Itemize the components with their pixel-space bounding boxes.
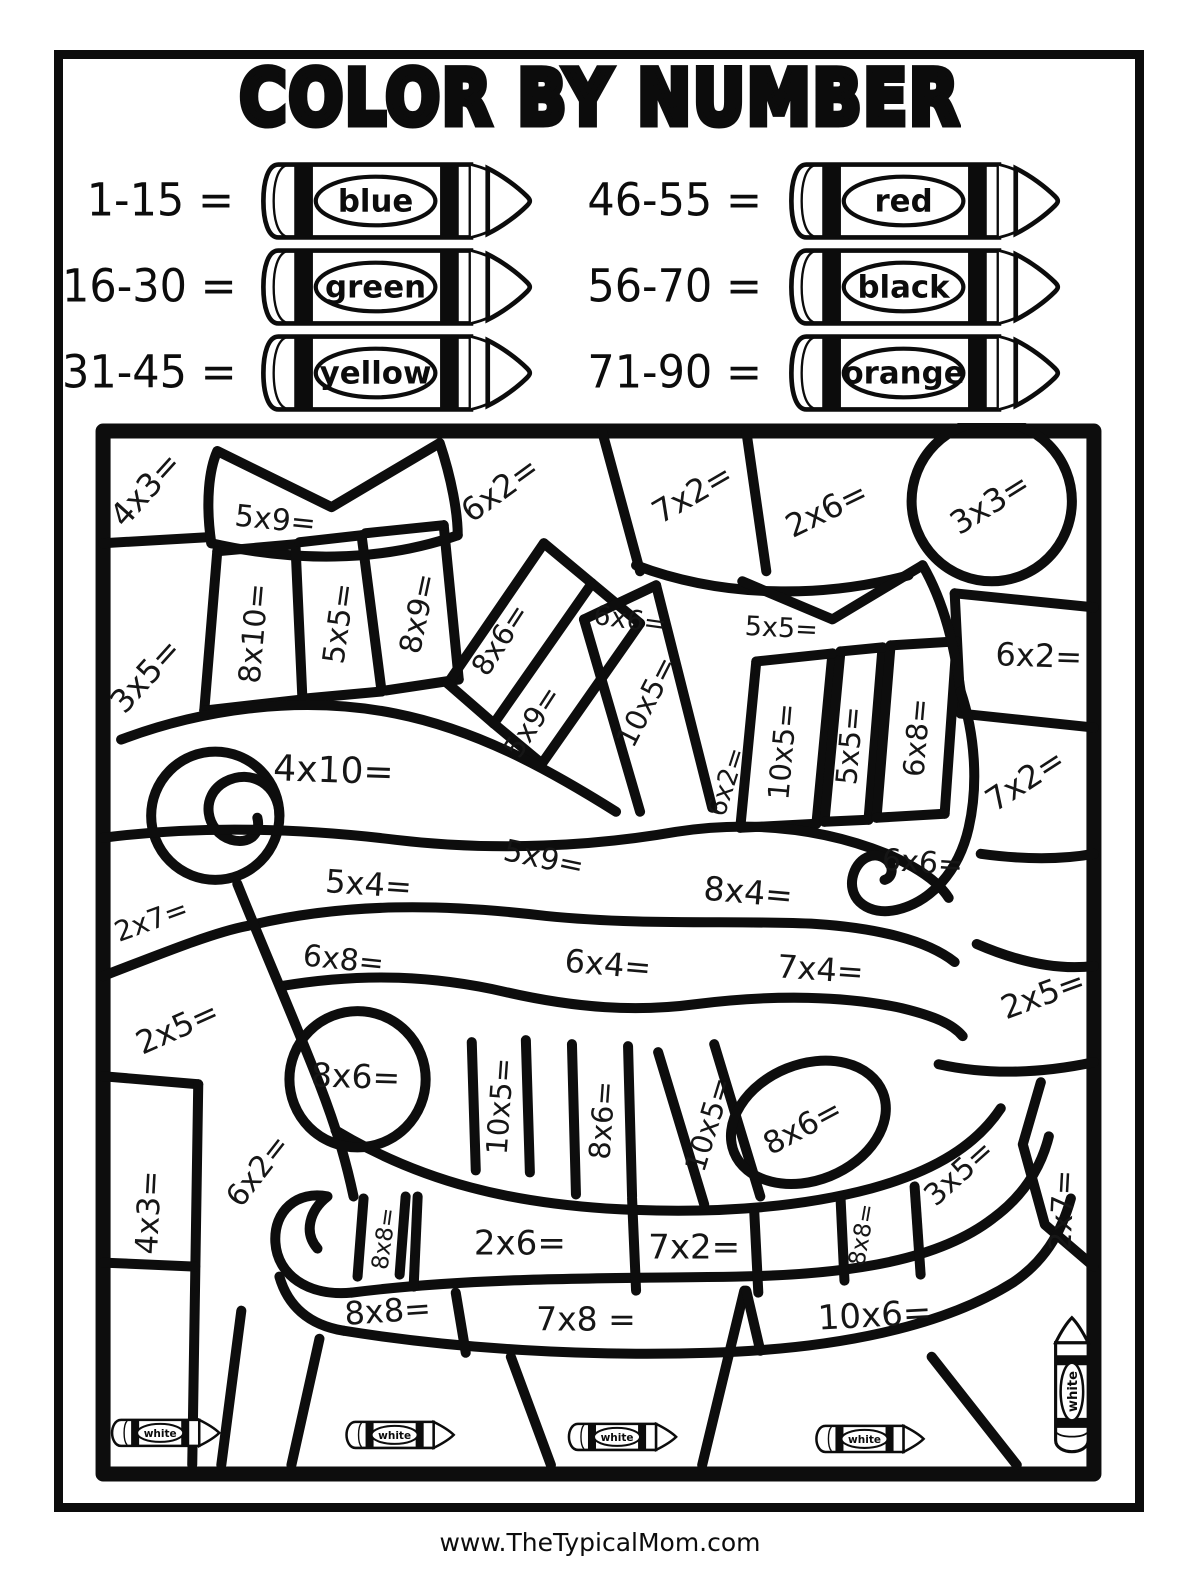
white-crayon-icon bbox=[569, 1424, 676, 1450]
legend-range-green: 16-30 = bbox=[62, 261, 242, 314]
puzzle-cell-label: 5x4= bbox=[324, 862, 413, 906]
puzzle-cell-label: 2x5= bbox=[996, 962, 1090, 1027]
crayon-icon-red: red bbox=[776, 158, 1076, 244]
crayon-icon-green: green bbox=[248, 244, 548, 330]
color-legend: 1-15 = blue 46-55 = red 16-30 = green 56… bbox=[62, 158, 1084, 416]
puzzle-cell-label: 3x3= bbox=[943, 464, 1037, 542]
puzzle-cell-label: 8x8= bbox=[343, 1289, 432, 1333]
crayon-icon-blue: blue bbox=[248, 158, 548, 244]
puzzle-cell-label: 4x10= bbox=[273, 747, 395, 793]
puzzle-cell-label: 5x9= bbox=[233, 499, 317, 542]
legend-range-orange: 71-90 = bbox=[562, 347, 770, 400]
legend-range-blue: 1-15 = bbox=[62, 175, 242, 228]
white-crayon-icon bbox=[1056, 1318, 1089, 1452]
legend-color-yellow: yellow bbox=[320, 355, 432, 391]
crayon-icon-orange: orange bbox=[776, 330, 1076, 416]
puzzle-cell-label: 6x8= bbox=[301, 938, 385, 981]
puzzle-cell-label: 5x5= bbox=[744, 611, 819, 646]
puzzle-cell-label: 10x5= bbox=[480, 1057, 521, 1156]
puzzle-cell-label: 8x6= bbox=[582, 1080, 621, 1161]
legend-range-yellow: 31-45 = bbox=[62, 347, 242, 400]
puzzle-cell-label: 8x6= bbox=[310, 1055, 401, 1097]
puzzle-cell-label: 10x5= bbox=[609, 651, 683, 753]
puzzle-cell-label: 10x6= bbox=[817, 1293, 933, 1339]
puzzle-cell-label: 6x4= bbox=[563, 942, 653, 987]
page-title: COLOR BY NUMBER bbox=[0, 62, 1200, 136]
legend-color-green: green bbox=[325, 269, 426, 305]
legend-range-red: 46-55 = bbox=[562, 175, 770, 228]
puzzle-cell-label: 2x6= bbox=[474, 1223, 566, 1263]
white-crayon-icon bbox=[816, 1426, 923, 1452]
puzzle-cell-label: 8x10= bbox=[233, 582, 277, 685]
puzzle-cell-label: 6x6= bbox=[881, 843, 964, 884]
puzzle-cell-label: 7x4= bbox=[776, 947, 865, 991]
puzzle-cell-label: 2x5= bbox=[130, 992, 225, 1062]
puzzle-cell-label: 3x5= bbox=[102, 631, 188, 721]
puzzle-cell-label: 2x7= bbox=[110, 892, 193, 949]
puzzle-cell-label: 6x2= bbox=[219, 1128, 297, 1214]
puzzle-cell-label: 8x4= bbox=[702, 869, 794, 916]
puzzle-cell-label: 7x2= bbox=[648, 1227, 740, 1267]
puzzle-cell-label: 8x9= bbox=[393, 570, 444, 657]
puzzle-cell-label: 8x6= bbox=[757, 1092, 848, 1163]
legend-color-red: red bbox=[874, 183, 932, 219]
white-crayon-icon bbox=[112, 1420, 219, 1446]
puzzle-cell-label: 2x6= bbox=[779, 473, 874, 545]
puzzle-cell-label: 10x5= bbox=[761, 702, 803, 802]
puzzle-cell-label: 7x8 = bbox=[536, 1299, 636, 1338]
puzzle-cell-label: 4x3= bbox=[102, 444, 188, 534]
puzzle-cell-label: 8x8= bbox=[844, 1202, 880, 1268]
puzzle-drawing: 4x3=5x9=6x2=7x2=2x6=3x3=3x5=8x10=5x5=8x9… bbox=[95, 423, 1102, 1482]
puzzle-cell-label: 5x5= bbox=[829, 705, 870, 786]
legend-color-blue: blue bbox=[338, 183, 414, 219]
color-by-number-puzzle: 4x3=5x9=6x2=7x2=2x6=3x3=3x5=8x10=5x5=8x9… bbox=[95, 423, 1102, 1482]
puzzle-cell-label: 6x2= bbox=[454, 448, 546, 530]
legend-color-orange: orange bbox=[843, 355, 965, 391]
legend-color-black: black bbox=[857, 269, 951, 305]
puzzle-cell-label: 6x2= bbox=[995, 635, 1083, 676]
puzzle-cell-label: 5x5= bbox=[317, 581, 363, 666]
puzzle-cell-label: 4x3= bbox=[129, 1170, 169, 1256]
legend-range-black: 56-70 = bbox=[562, 261, 770, 314]
crayon-icon-black: black bbox=[776, 244, 1076, 330]
crayon-icon-yellow: yellow bbox=[248, 330, 548, 416]
puzzle-cell-label: 5x9= bbox=[496, 679, 567, 763]
puzzle-cell-label: 7x2= bbox=[645, 455, 739, 531]
white-crayon-icon bbox=[347, 1422, 454, 1448]
puzzle-cell-label: 2x7= bbox=[1043, 1169, 1082, 1252]
puzzle-cell-label: 6x8= bbox=[896, 697, 937, 778]
puzzle-cell-label: 7x2= bbox=[978, 740, 1071, 819]
source-website: www.TheTypicalMom.com bbox=[0, 1528, 1200, 1557]
